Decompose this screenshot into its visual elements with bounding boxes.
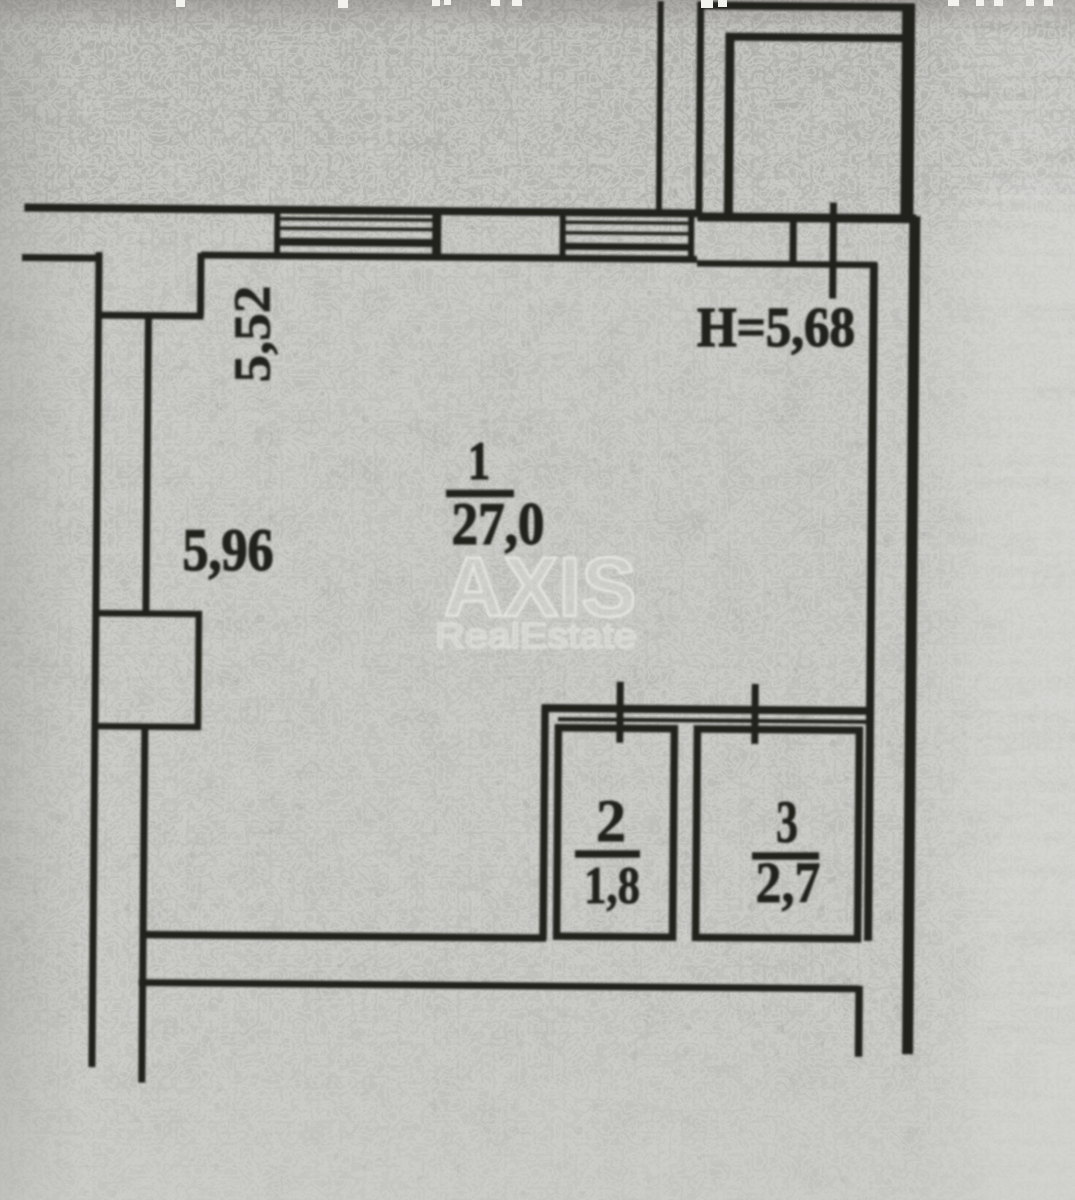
svg-text:RealEstate: RealEstate bbox=[435, 615, 637, 656]
svg-text:5,52: 5,52 bbox=[225, 286, 282, 383]
svg-text:H=5,68: H=5,68 bbox=[697, 297, 855, 359]
svg-text:1,8: 1,8 bbox=[584, 857, 640, 915]
svg-text:2: 2 bbox=[596, 788, 626, 854]
svg-text:3: 3 bbox=[776, 789, 798, 855]
svg-text:2,7: 2,7 bbox=[756, 850, 821, 915]
svg-text:1: 1 bbox=[468, 431, 490, 491]
svg-text:5,96: 5,96 bbox=[183, 517, 274, 583]
